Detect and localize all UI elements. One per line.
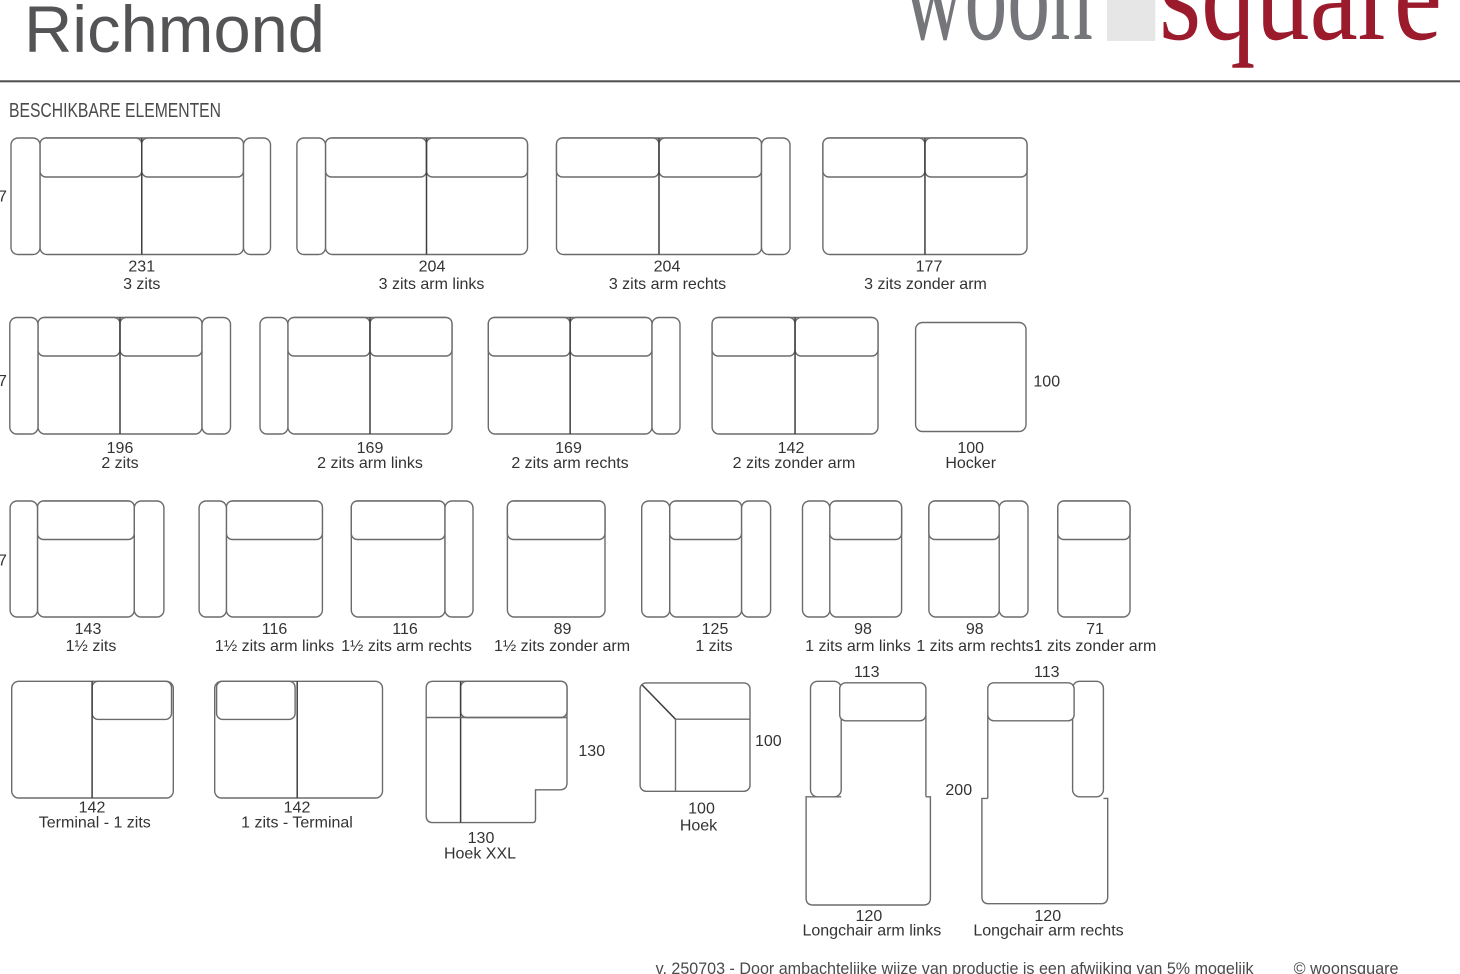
svg-text:3 zits zonder arm: 3 zits zonder arm <box>864 276 987 293</box>
svg-text:2 zits zonder arm: 2 zits zonder arm <box>733 455 856 472</box>
svg-text:3 zits arm rechts: 3 zits arm rechts <box>609 276 726 293</box>
svg-text:143: 143 <box>75 621 102 638</box>
svg-text:2 zits: 2 zits <box>101 455 138 472</box>
svg-text:square: square <box>1159 0 1442 69</box>
svg-text:125: 125 <box>702 621 729 638</box>
svg-text:v. 250703 - Door ambachtelijke: v. 250703 - Door ambachtelijke wijze van… <box>656 959 1254 974</box>
svg-text:1 zits arm rechts: 1 zits arm rechts <box>916 638 1033 655</box>
svg-text:100: 100 <box>1033 373 1060 390</box>
svg-text:7: 7 <box>0 189 7 206</box>
svg-text:2 zits arm rechts: 2 zits arm rechts <box>511 455 628 472</box>
svg-text:1 zits: 1 zits <box>695 638 732 655</box>
svg-text:woon: woon <box>903 0 1093 69</box>
svg-text:1½ zits arm links: 1½ zits arm links <box>215 638 334 655</box>
svg-text:3 zits arm links: 3 zits arm links <box>379 276 485 293</box>
svg-text:116: 116 <box>262 621 288 638</box>
svg-text:Terminal - 1 zits: Terminal - 1 zits <box>39 815 151 832</box>
svg-text:130: 130 <box>578 743 605 760</box>
svg-text:231: 231 <box>128 259 155 276</box>
svg-text:1½ zits arm rechts: 1½ zits arm rechts <box>341 638 472 655</box>
svg-text:2 zits arm links: 2 zits arm links <box>317 455 423 472</box>
svg-text:Richmond: Richmond <box>24 0 325 66</box>
svg-text:BESCHIKBARE ELEMENTEN: BESCHIKBARE ELEMENTEN <box>9 100 221 122</box>
svg-text:1 zits arm links: 1 zits arm links <box>805 638 911 655</box>
svg-text:1 zits - Terminal: 1 zits - Terminal <box>241 815 353 832</box>
svg-text:Hocker: Hocker <box>945 455 996 472</box>
svg-text:Longchair arm links: Longchair arm links <box>802 923 941 940</box>
svg-text:3 zits: 3 zits <box>123 276 160 293</box>
svg-text:1 zits zonder arm: 1 zits zonder arm <box>1034 638 1157 655</box>
svg-text:Hoek XXL: Hoek XXL <box>444 846 516 863</box>
svg-text:200: 200 <box>945 782 972 799</box>
svg-text:Longchair arm rechts: Longchair arm rechts <box>973 923 1123 940</box>
svg-text:© woonsquare: © woonsquare <box>1294 959 1399 974</box>
svg-text:130: 130 <box>468 830 495 847</box>
svg-text:98: 98 <box>966 621 984 638</box>
svg-text:Hoek: Hoek <box>680 818 718 835</box>
svg-text:204: 204 <box>654 259 681 276</box>
svg-text:100: 100 <box>755 733 782 750</box>
svg-text:1½ zits: 1½ zits <box>66 638 117 655</box>
svg-text:204: 204 <box>419 259 446 276</box>
svg-text:1½ zits zonder arm: 1½ zits zonder arm <box>494 638 630 655</box>
svg-text:71: 71 <box>1086 621 1104 638</box>
svg-text:177: 177 <box>916 259 943 276</box>
svg-text:7: 7 <box>0 553 7 570</box>
svg-text:100: 100 <box>688 801 715 818</box>
svg-text:116: 116 <box>392 621 418 638</box>
svg-text:113: 113 <box>1034 664 1060 681</box>
svg-text:98: 98 <box>854 621 872 638</box>
svg-text:113: 113 <box>854 664 880 681</box>
svg-text:89: 89 <box>554 621 572 638</box>
svg-text:7: 7 <box>0 373 7 390</box>
